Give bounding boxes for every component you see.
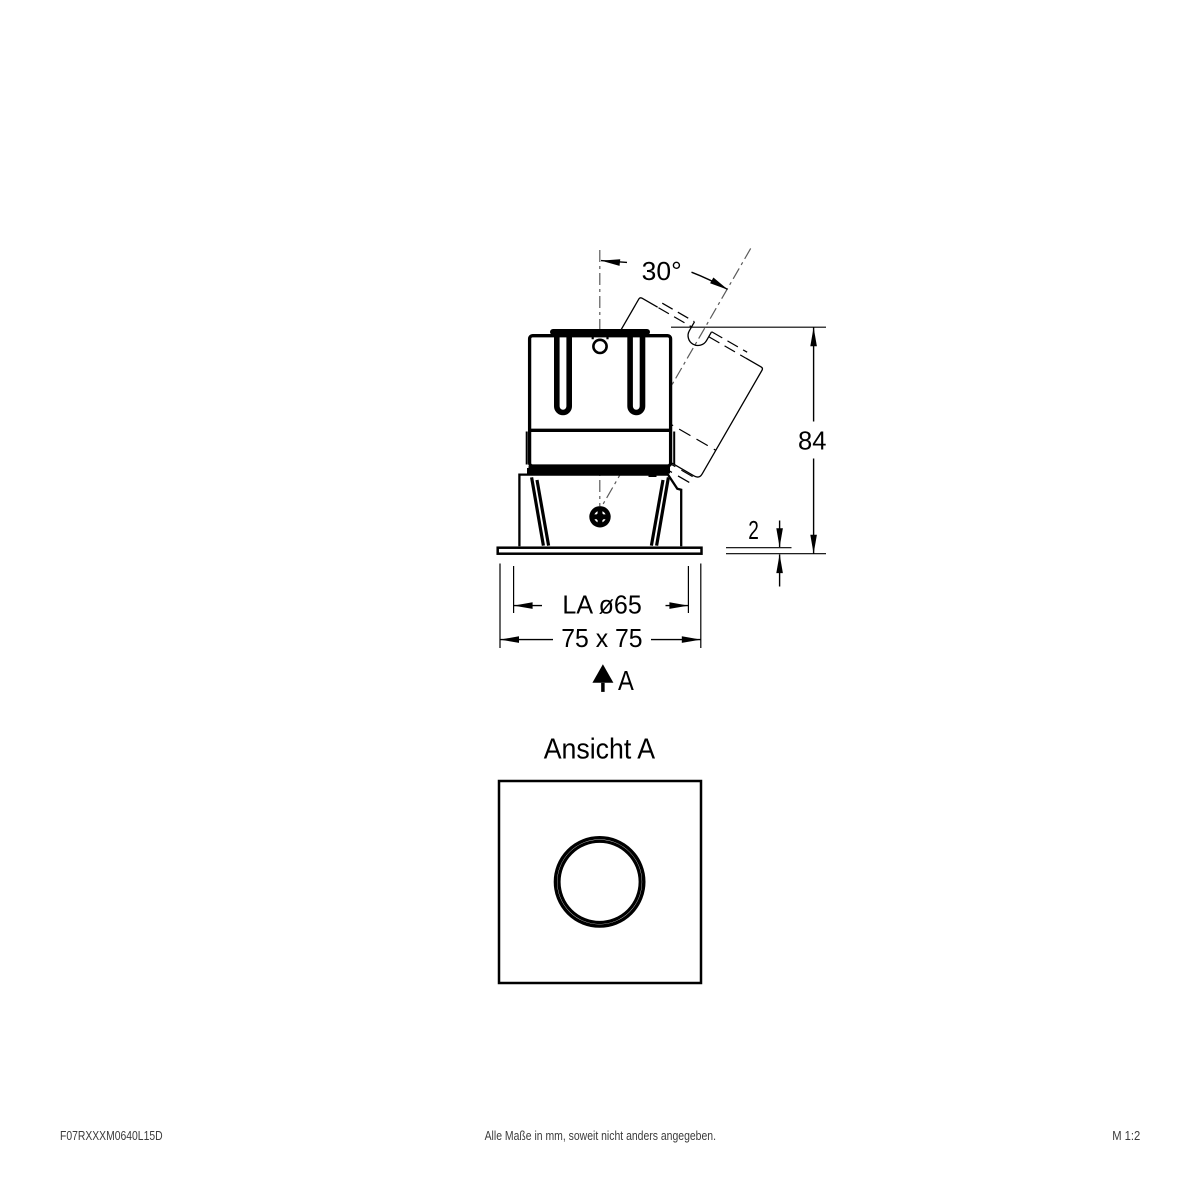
svg-text:F07RXXXM0640L15D: F07RXXXM0640L15D xyxy=(60,1128,163,1143)
svg-text:Alle Maße in mm, soweit nicht: Alle Maße in mm, soweit nicht anders ang… xyxy=(485,1128,716,1143)
svg-text:M 1:2: M 1:2 xyxy=(1112,1128,1140,1143)
svg-text:Ansicht A: Ansicht A xyxy=(544,733,656,765)
svg-text:LA ø65: LA ø65 xyxy=(562,589,641,619)
svg-text:30°: 30° xyxy=(642,256,682,286)
svg-text:75 x 75: 75 x 75 xyxy=(561,623,642,653)
svg-text:84: 84 xyxy=(798,425,826,455)
svg-text:2: 2 xyxy=(748,515,759,545)
svg-text:A: A xyxy=(618,665,634,696)
